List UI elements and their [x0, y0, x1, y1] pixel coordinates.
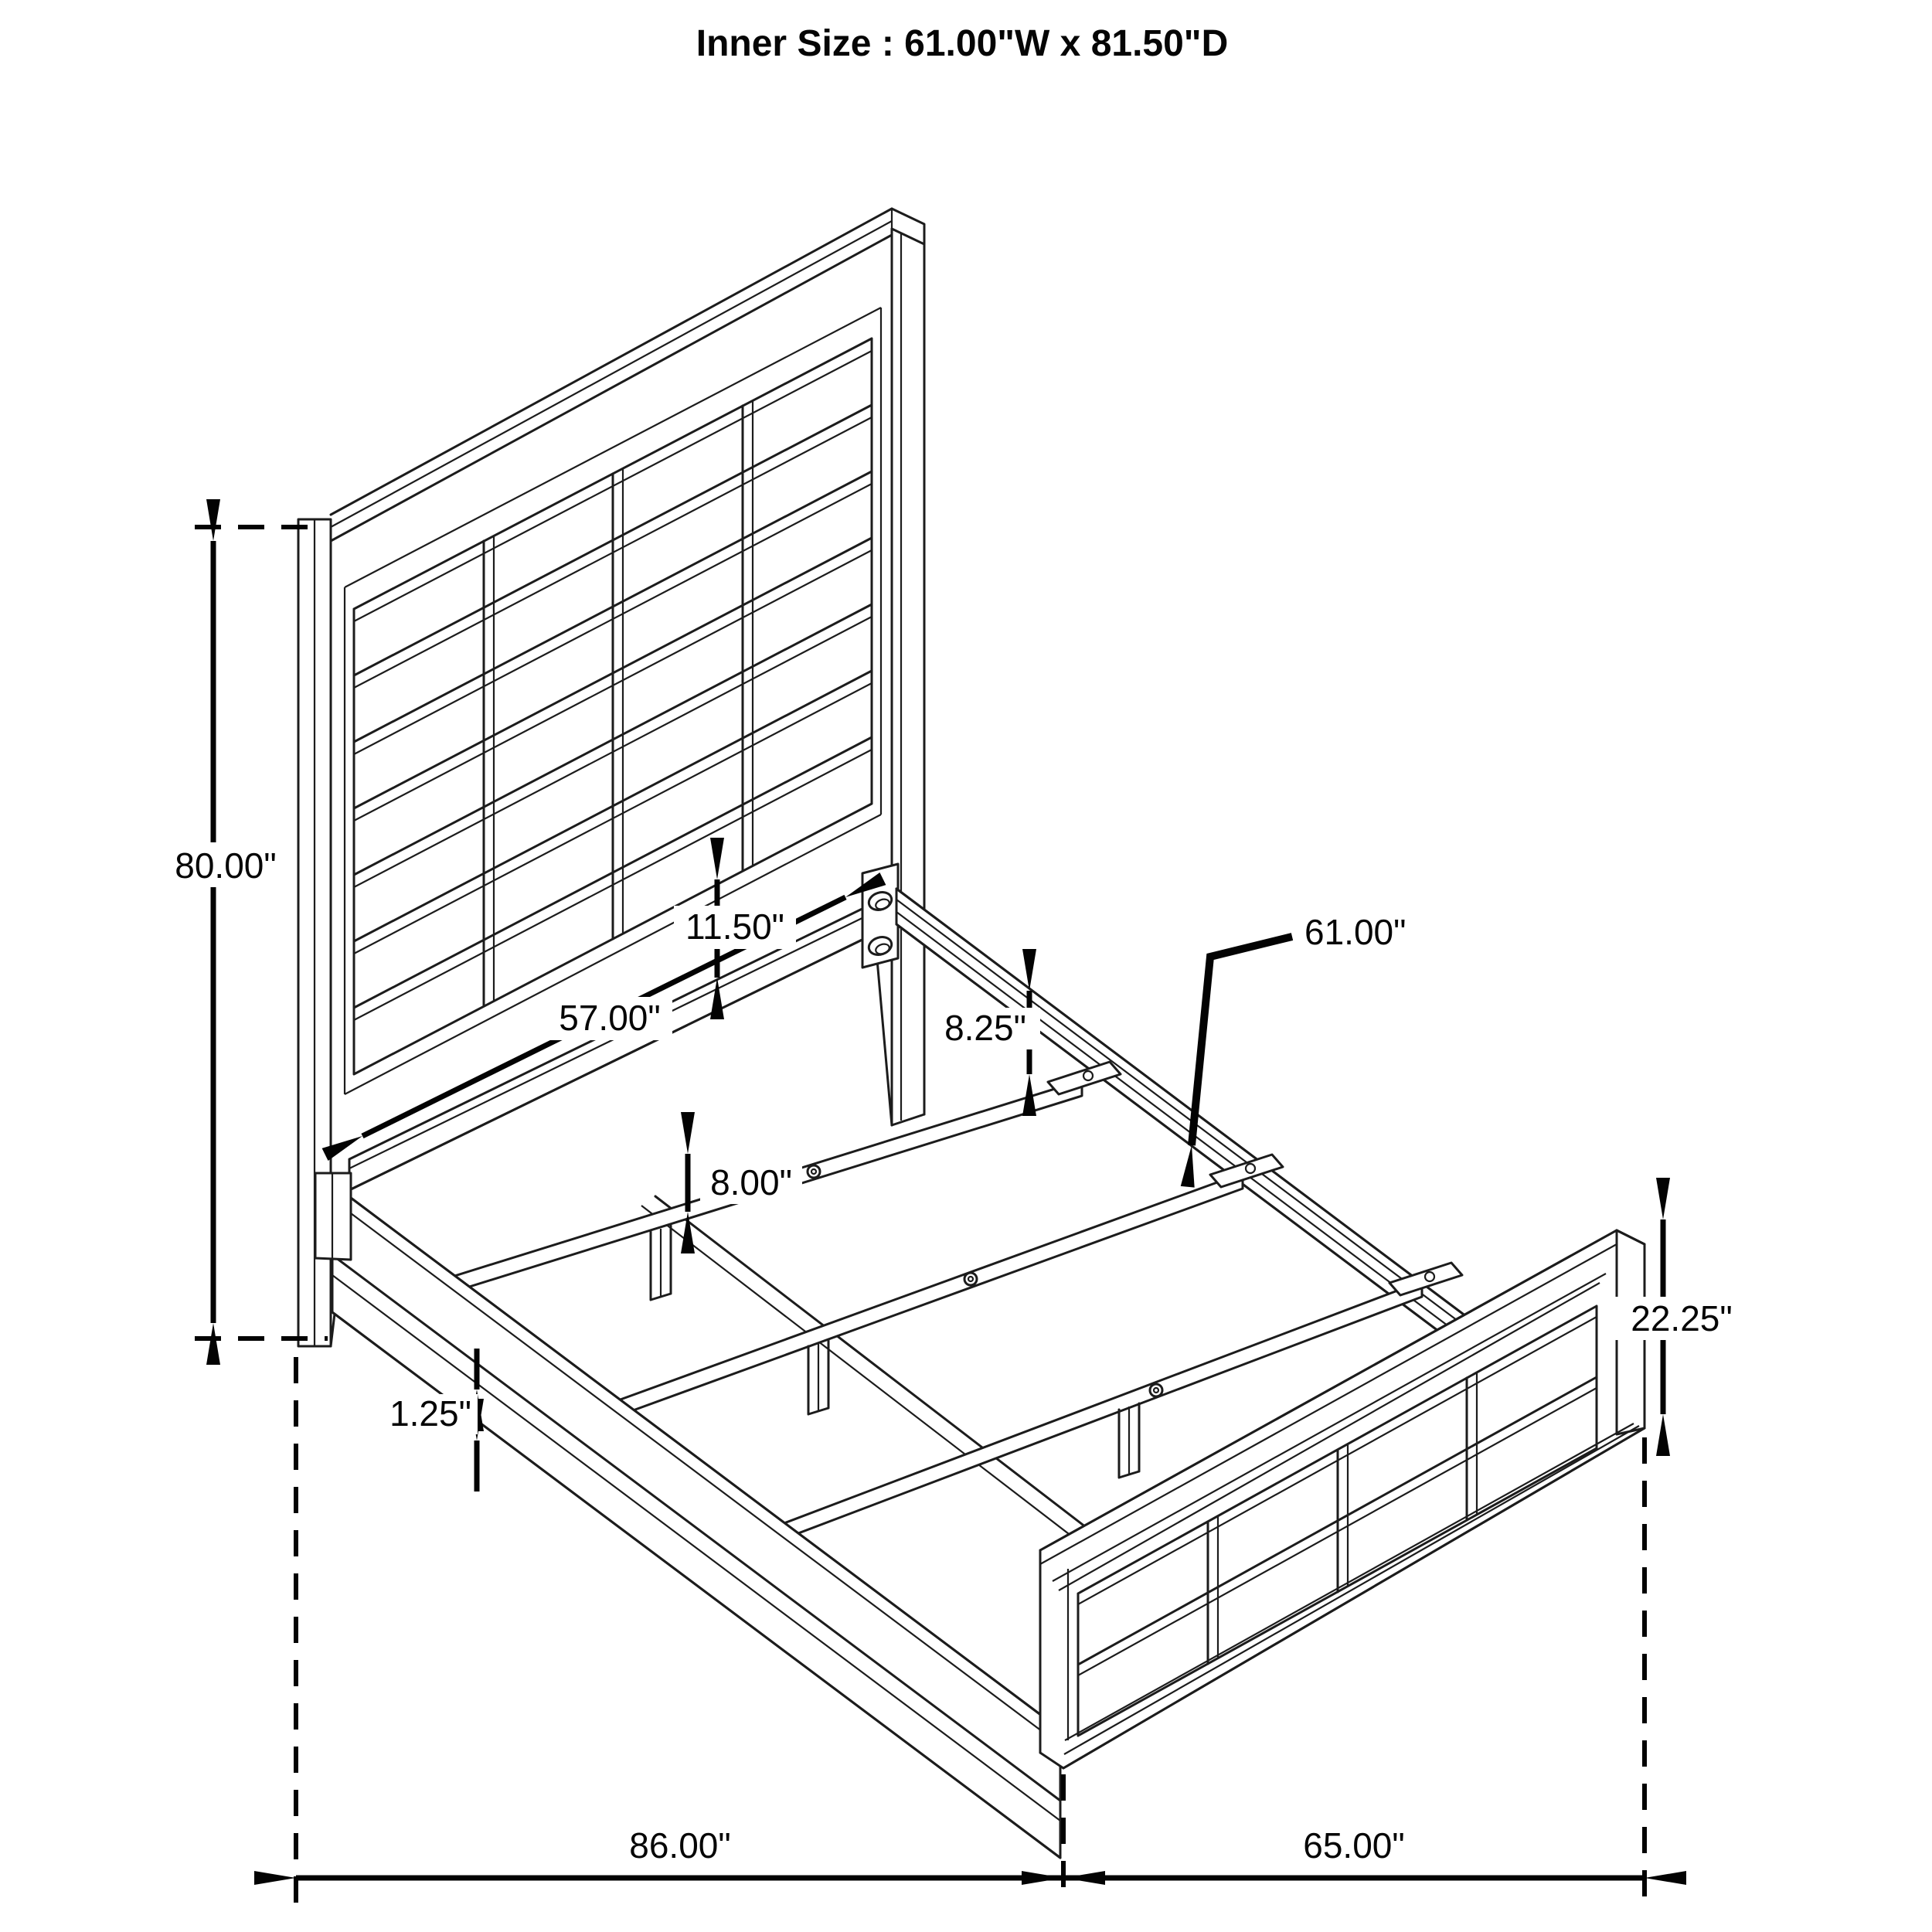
slat-length-label: 61.00": [1304, 912, 1406, 952]
headboard-inner-width-label: 57.00": [559, 998, 660, 1038]
dimension-slat-length: 61.00": [1192, 912, 1406, 1145]
rail-thickness-label: 1.25": [389, 1393, 471, 1434]
overall-length-label: 86.00": [629, 1825, 730, 1866]
slat-3-center-leg: [1119, 1403, 1139, 1478]
footboard-span-label: 65.00": [1303, 1825, 1404, 1866]
left-side-rail: [315, 1173, 1060, 1858]
footboard-height-label: 22.25": [1631, 1298, 1732, 1338]
left-rail-end-post: [315, 1173, 351, 1260]
panel-gap-label: 11.50": [685, 906, 784, 947]
headboard-right-post: [892, 229, 924, 1125]
slat-2-center-leg: [808, 1340, 828, 1414]
center-leg-height-label: 8.00": [710, 1162, 792, 1202]
slat-1-center-leg: [651, 1226, 671, 1300]
dimension-center-leg-height: 8.00": [688, 1154, 802, 1212]
rail-bracket: [862, 864, 898, 968]
rail-to-slat-label: 8.25": [944, 1008, 1026, 1048]
diagram-title: Inner Size : 61.00"W x 81.50"D: [696, 23, 1228, 64]
headboard: [298, 209, 924, 1346]
diagram-canvas: 80.00" 57.00" 11.50" 8.00" 8.25" 61.00" …: [0, 0, 1932, 1932]
headboard-height-label: 80.00": [175, 845, 276, 886]
bed-dimension-diagram: 80.00" 57.00" 11.50" 8.00" 8.25" 61.00" …: [0, 0, 1932, 1932]
dimension-overall-length: 86.00": [296, 1357, 1063, 1903]
